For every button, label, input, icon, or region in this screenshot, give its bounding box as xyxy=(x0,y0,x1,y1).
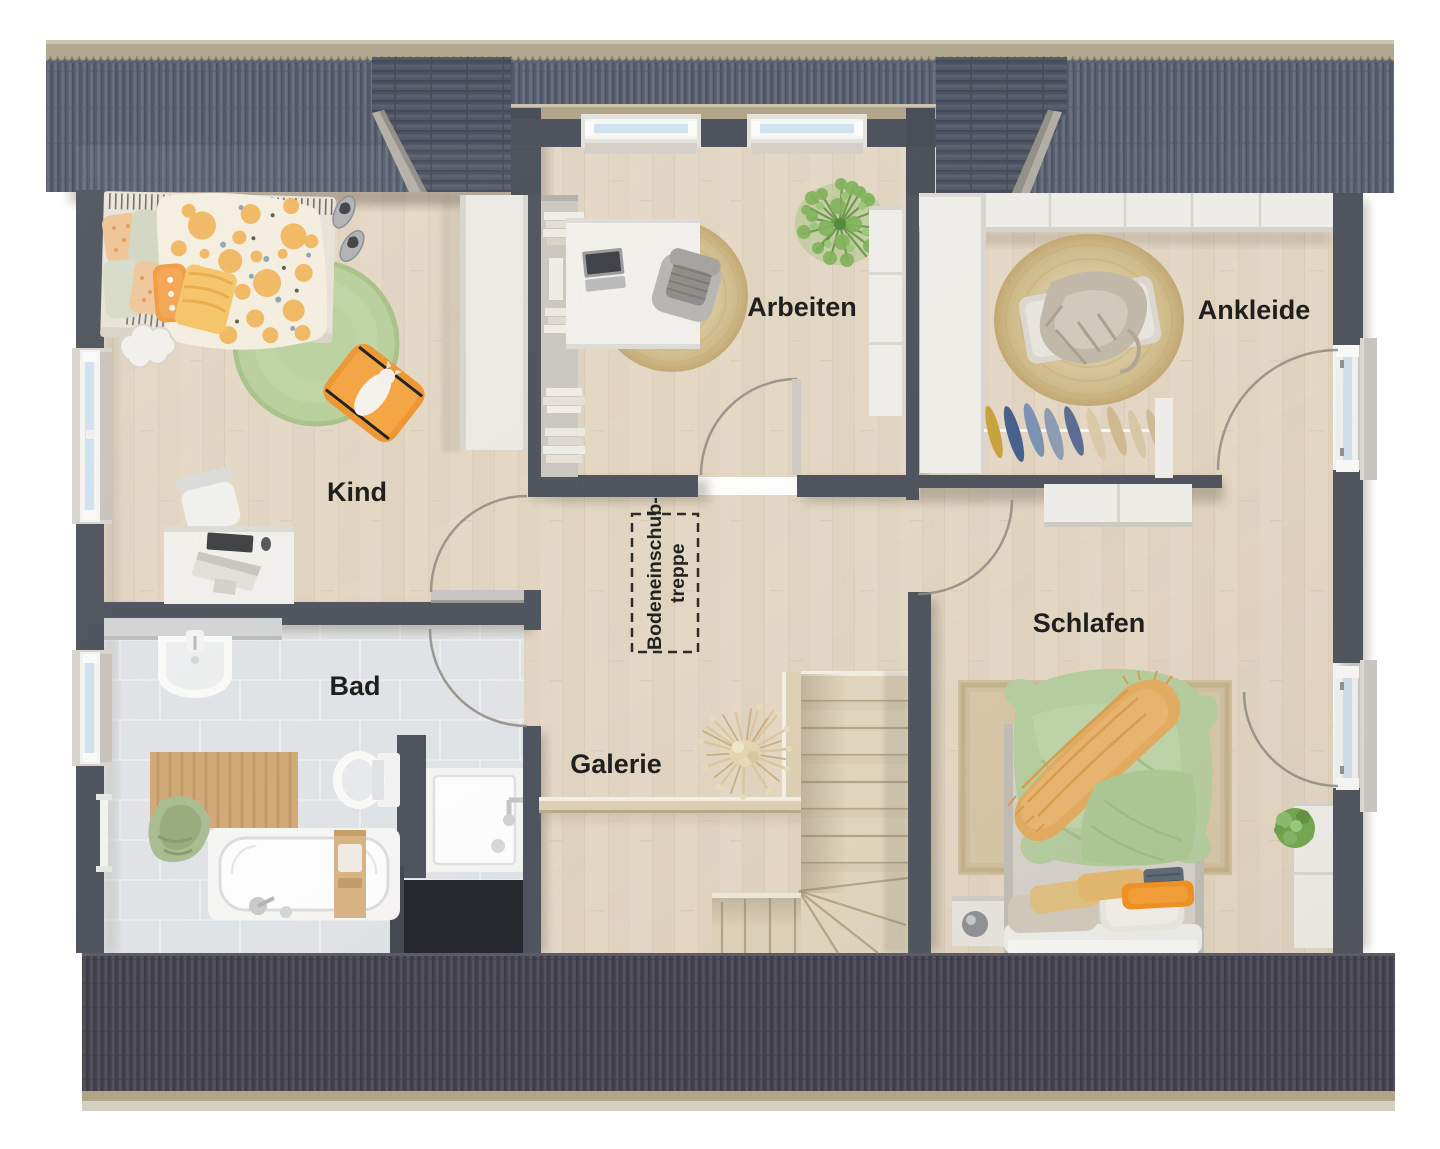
svg-text:Galerie: Galerie xyxy=(570,749,662,779)
svg-text:Schlafen: Schlafen xyxy=(1033,608,1146,638)
svg-text:Ankleide: Ankleide xyxy=(1198,295,1311,325)
svg-text:Arbeiten: Arbeiten xyxy=(747,292,857,322)
svg-text:Kind: Kind xyxy=(327,477,387,507)
svg-text:Bad: Bad xyxy=(329,671,380,701)
